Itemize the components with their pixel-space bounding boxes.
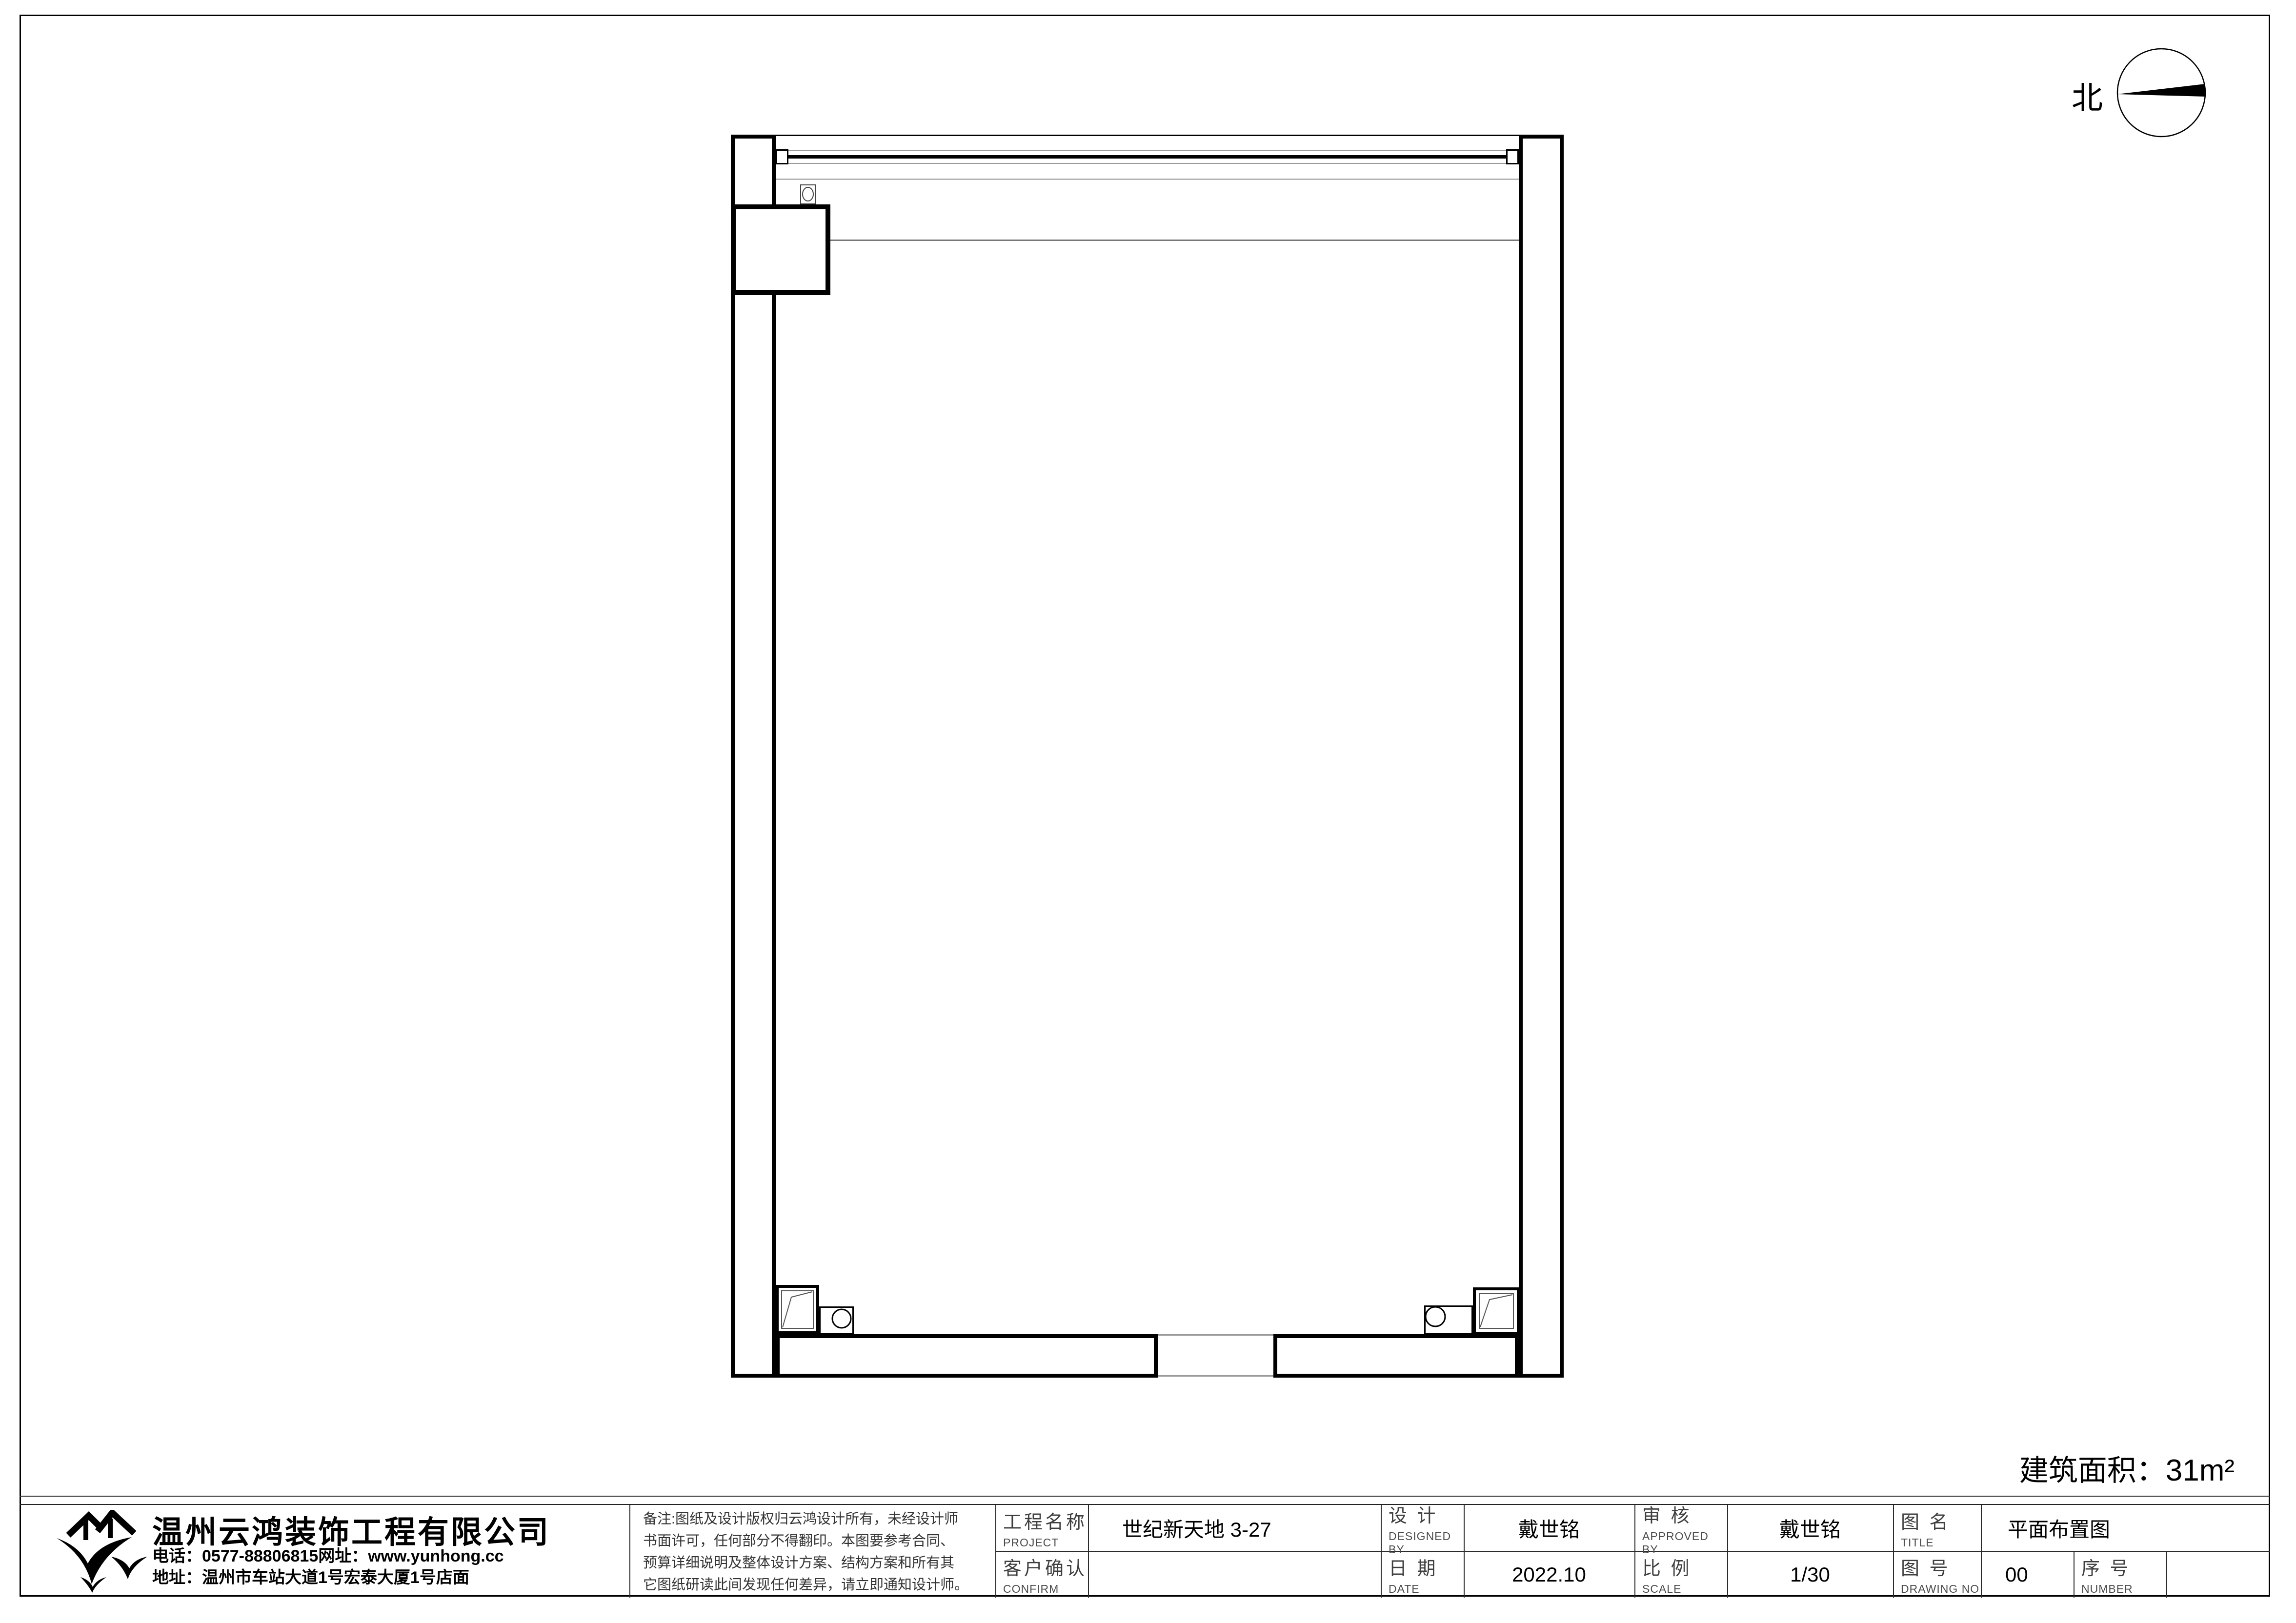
drawing-no-value: 00: [1981, 1551, 2074, 1598]
field-designer-label: 设 计 DESIGNED BY: [1381, 1505, 1464, 1551]
company-logo: [54, 1510, 149, 1593]
notes-line: 书面许可，任何部分不得翻印。本图要参考合同、: [643, 1530, 980, 1552]
field-project-label: 工程名称 PROJECT: [995, 1505, 1088, 1551]
notes-line: 预算详细说明及整体设计方案、结构方案和所有其: [643, 1552, 980, 1574]
field-approver-label: 审 核 APPROVED BY: [1634, 1505, 1727, 1551]
north-compass-icon: [2115, 46, 2208, 139]
wall-right: [1519, 135, 1564, 1378]
column-box: [731, 204, 830, 295]
drawing-title-value: 平面布置图: [1981, 1505, 2270, 1551]
notes-line: 备注:图纸及设计版权归云鸿设计所有，未经设计师: [643, 1508, 980, 1530]
field-date-label: 日 期 DATE: [1381, 1551, 1464, 1598]
window-frame-end-left: [776, 149, 788, 164]
beam-line: [830, 240, 1519, 241]
designer-value: 戴世铭: [1464, 1505, 1634, 1551]
built-area-value: 31m²: [2166, 1454, 2235, 1487]
notes-line: 它图纸研读此间发现任何差异，请立即通知设计师。: [643, 1574, 980, 1596]
company-address: 地址：温州市车站大道1号宏泰大厦1号店面: [152, 1564, 469, 1588]
window-frame-line-lower: [787, 163, 1507, 164]
door-opening-line-bottom: [1158, 1375, 1273, 1377]
field-title-label: 图 名 TITLE: [1893, 1505, 1981, 1551]
confirm-value: [1088, 1551, 1381, 1598]
number-value: [2166, 1551, 2270, 1598]
field-drawingno-label: 图 号 DRAWING NO: [1893, 1551, 1981, 1598]
fold-square-symbol-right: [1473, 1287, 1520, 1335]
circle-box-symbol-left: [819, 1306, 854, 1334]
ceiling-edge-line: [776, 179, 1519, 180]
field-number-label: 序 号 NUMBER: [2074, 1551, 2166, 1598]
field-scale-label: 比 例 SCALE: [1634, 1551, 1727, 1598]
wall-bottom-left: [776, 1334, 1158, 1378]
wall-bottom-right: [1273, 1334, 1519, 1378]
titleblock-upper-rule: [20, 1496, 2270, 1497]
window-glazing-line: [787, 155, 1507, 159]
project-name-value: 世纪新天地 3-27: [1088, 1505, 1381, 1551]
circle-box-symbol-right: [1424, 1305, 1473, 1334]
built-area-label: 建筑面积：31m²: [1893, 1447, 2235, 1489]
window-frame-end-right: [1506, 149, 1519, 164]
field-confirm-label: 客户确认 CONFIRM: [995, 1551, 1088, 1598]
window-frame-line-upper: [787, 150, 1507, 151]
north-label: 北: [2072, 73, 2103, 118]
notes-text: 备注:图纸及设计版权归云鸿设计所有，未经设计师 书面许可，任何部分不得翻印。本图…: [643, 1508, 980, 1596]
wall-left: [731, 135, 776, 1378]
built-area-caption: 建筑面积：: [2019, 1454, 2166, 1487]
date-value: 2022.10: [1464, 1551, 1634, 1598]
approver-value: 戴世铭: [1727, 1505, 1893, 1551]
door-opening-line-top: [1158, 1334, 1273, 1336]
drawing-sheet: 北: [0, 0, 2296, 1623]
fold-square-symbol-left: [776, 1285, 819, 1334]
scale-value: 1/30: [1727, 1551, 1893, 1598]
company-phone: 电话：0577-88806815网址：www.yunhong.cc: [152, 1543, 504, 1566]
pipe-symbol: [800, 184, 816, 204]
storefront-top-line: [776, 135, 1519, 136]
